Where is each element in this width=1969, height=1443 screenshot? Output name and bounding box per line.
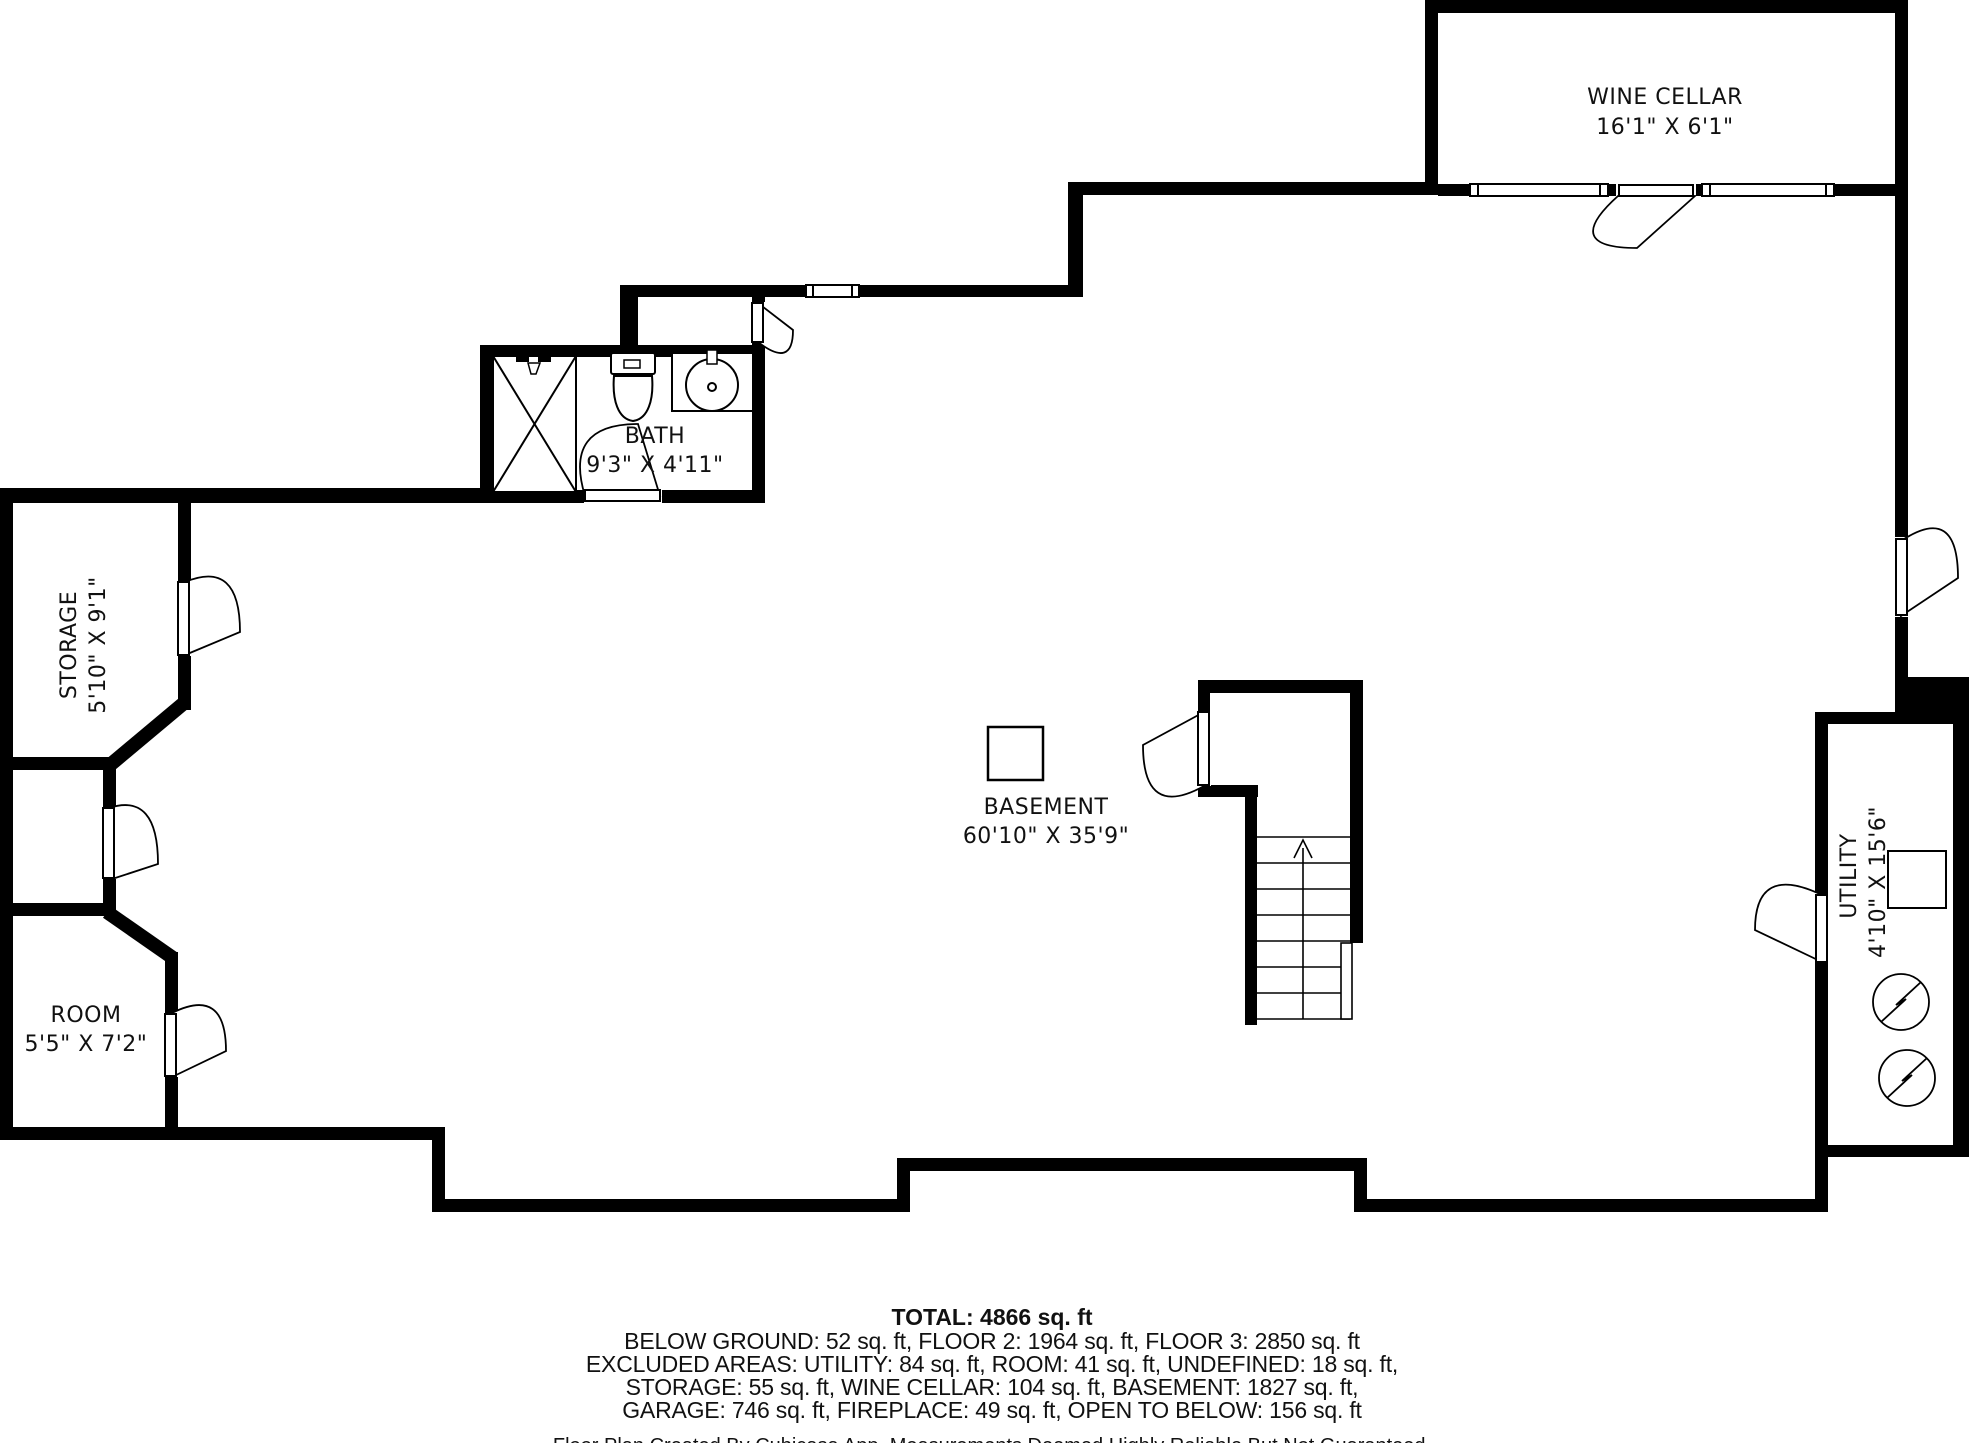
wall-segment (103, 770, 116, 808)
wall-segment (0, 488, 492, 503)
door-openings (102, 183, 1909, 1077)
wall-segment (1068, 182, 1438, 195)
wall-segment (1953, 677, 1969, 1157)
room-dims: 5'10" X 9'1" (86, 576, 111, 713)
wall-segment (0, 1127, 445, 1140)
door-icon (1143, 712, 1209, 797)
door-icon (1896, 528, 1958, 616)
floor-plan-page: WINE CELLAR 16'1" X 6'1" BATH 9'3" X 4'1… (0, 0, 1969, 1443)
wall-segment (0, 488, 13, 1140)
footer-disclaimer: Floor Plan Created By Cubicasa App. Meas… (553, 1435, 1431, 1443)
wall-segment (107, 912, 173, 958)
wall-segment (1350, 680, 1363, 943)
room-dims: 60'10" X 35'9" (963, 824, 1129, 849)
wall-segment (1815, 712, 1955, 724)
room-label-utility: UTILITY 4'10" X 15'6" (1837, 806, 1891, 958)
room-dims: 5'5" X 7'2" (25, 1032, 148, 1057)
wall-segment (1425, 0, 1908, 13)
room-name: BATH (625, 424, 685, 449)
room-name: ROOM (51, 1003, 122, 1028)
water-heater-icon (1888, 851, 1946, 908)
wall-segment (1068, 182, 1083, 297)
summary-total: TOTAL: 4866 sq. ft (891, 1304, 1092, 1330)
room-name: BASEMENT (984, 795, 1109, 820)
wall-segment (165, 1076, 178, 1136)
toilet-icon (611, 353, 655, 421)
room-dims: 4'10" X 15'6" (1866, 806, 1891, 958)
room-name: WINE CELLAR (1587, 85, 1743, 110)
electrical-panel-icon (1873, 974, 1929, 1030)
fireplace-icon (988, 727, 1043, 780)
summary-line: GARAGE: 746 sq. ft, FIREPLACE: 49 sq. ft… (622, 1397, 1362, 1423)
window-icon (806, 285, 859, 297)
room-dims: 16'1" X 6'1" (1596, 115, 1733, 140)
wall-segment (178, 497, 191, 582)
walls (0, 0, 1969, 1212)
room-label-basement: BASEMENT 60'10" X 35'9" (963, 795, 1129, 849)
window-icon (1702, 184, 1834, 196)
room-dims: 9'3" X 4'11" (586, 453, 723, 478)
wall-segment (1198, 680, 1363, 693)
wall-segment (110, 703, 184, 765)
sink-icon (672, 350, 753, 411)
door-icon (165, 1005, 226, 1077)
wall-segment (432, 1199, 910, 1212)
room-label-room: ROOM 5'5" X 7'2" (25, 1003, 148, 1057)
electrical-panel-icon (1879, 1050, 1935, 1106)
door-icon (178, 576, 240, 655)
window-icon (1470, 184, 1608, 196)
doors (103, 185, 1958, 1077)
room-label-wine-cellar: WINE CELLAR 16'1" X 6'1" (1587, 85, 1743, 140)
wall-segment (1198, 693, 1210, 712)
wall-segment (480, 345, 494, 503)
stairs-icon (1257, 837, 1352, 1019)
room-label-storage: STORAGE 5'10" X 9'1" (57, 576, 111, 713)
wall-segment (897, 1158, 1367, 1171)
room-name: STORAGE (57, 591, 82, 699)
door-icon (1755, 885, 1827, 962)
wall-segment (0, 903, 116, 916)
wall-segment (1354, 1199, 1828, 1212)
wall-segment (1425, 0, 1438, 195)
door-icon (103, 805, 158, 880)
area-summary: TOTAL: 4866 sq. ft BELOW GROUND: 52 sq. … (553, 1304, 1431, 1443)
shower-icon (493, 353, 576, 492)
wall-segment (1245, 785, 1257, 1025)
wall-segment (1815, 1145, 1969, 1157)
floor-plan-canvas: WINE CELLAR 16'1" X 6'1" BATH 9'3" X 4'1… (0, 0, 1969, 1443)
wall-segment (0, 757, 116, 770)
room-name: UTILITY (1837, 833, 1862, 918)
